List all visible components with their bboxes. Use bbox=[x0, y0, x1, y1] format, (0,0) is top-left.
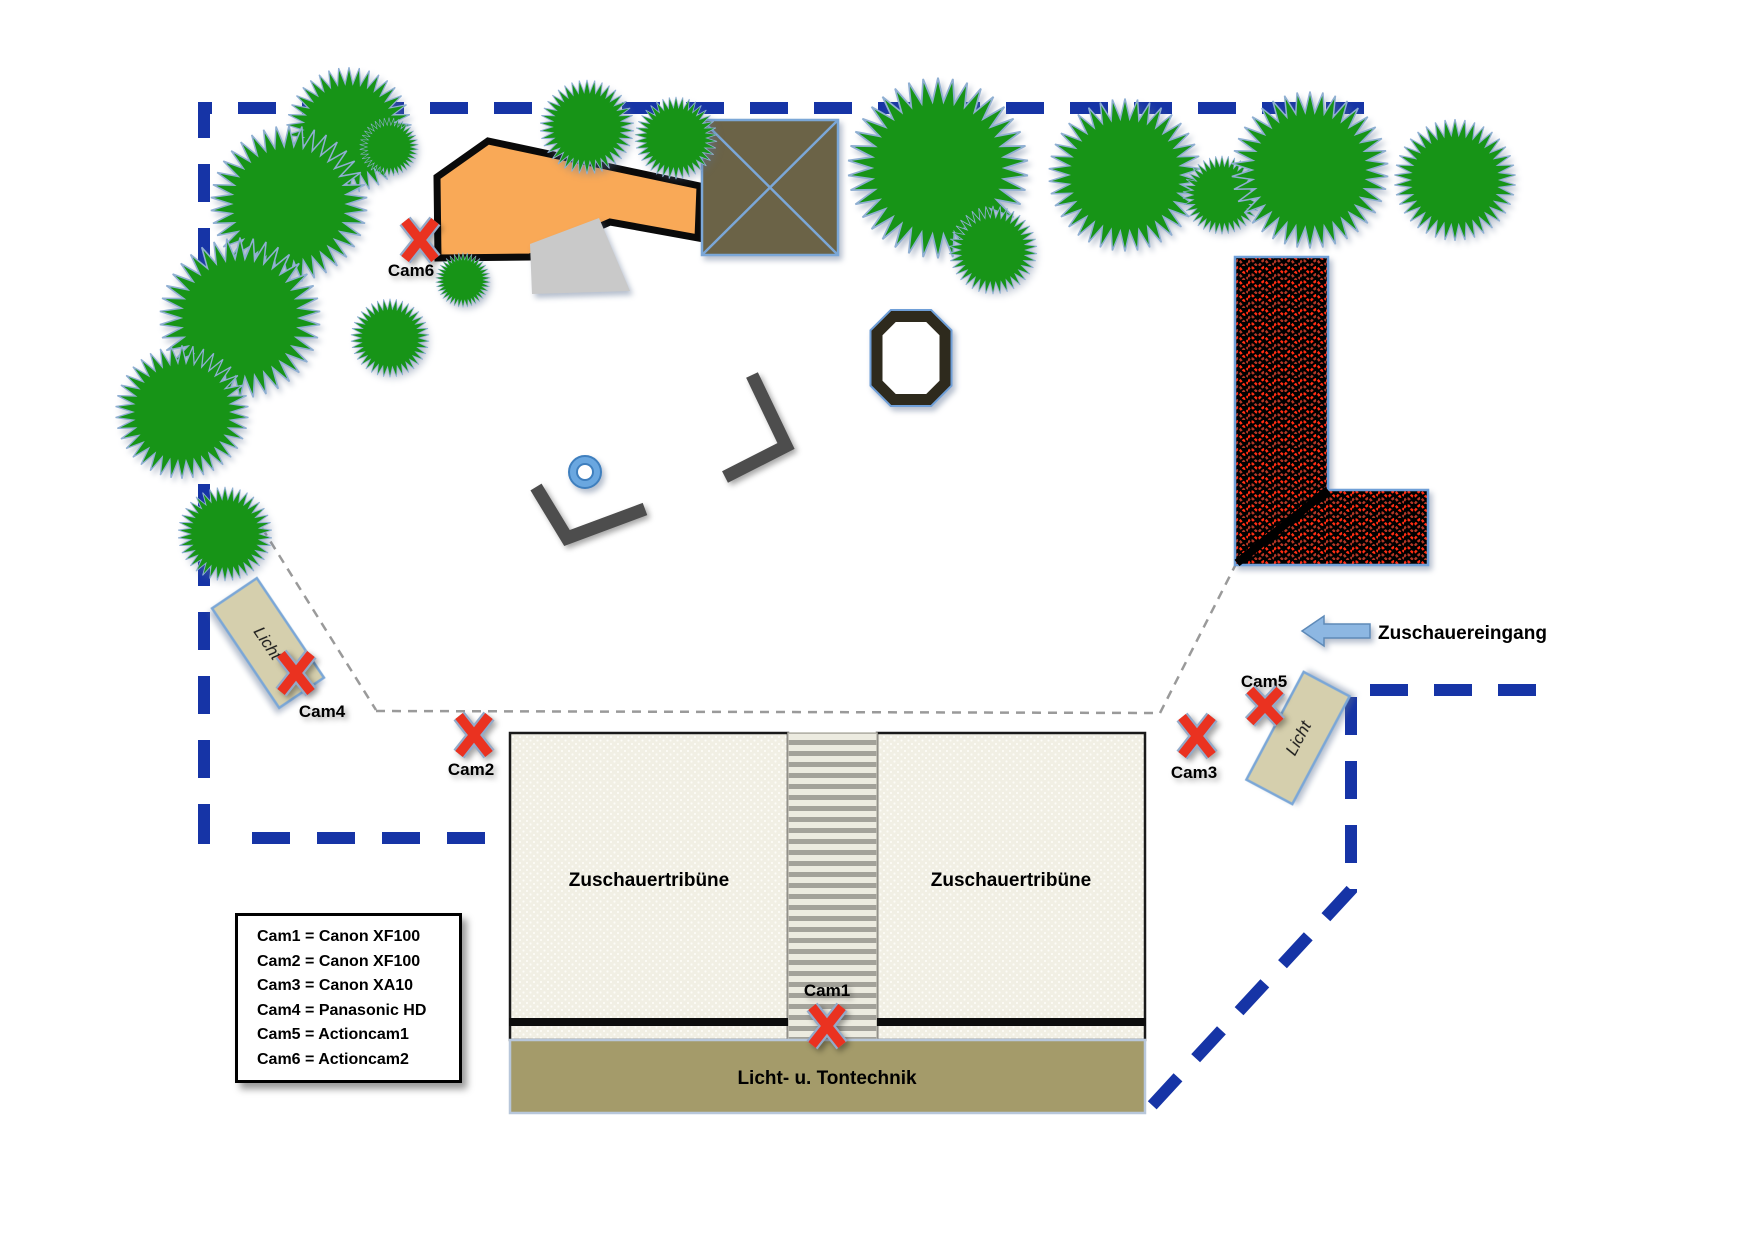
light-stand-right: Licht bbox=[1246, 672, 1349, 804]
tree-icon bbox=[178, 487, 272, 581]
camera-label-cam4: Cam4 bbox=[299, 702, 346, 721]
camera-marker-cam6: Cam6 bbox=[388, 221, 435, 280]
camera-label-cam1: Cam1 bbox=[804, 981, 850, 1000]
camera-label-cam2: Cam2 bbox=[448, 760, 494, 779]
legend-item-cam4: Cam4 = Panasonic HD bbox=[257, 999, 459, 1024]
camera-label-cam5: Cam5 bbox=[1241, 672, 1287, 691]
legend-item-cam3: Cam3 = Canon XA10 bbox=[257, 974, 459, 999]
sightline-horizontal bbox=[376, 711, 1160, 713]
legend-item-cam5: Cam5 = Actioncam1 bbox=[257, 1023, 459, 1048]
sightline-right-diagonal bbox=[1160, 562, 1237, 713]
camera-marker-cam5: Cam5 bbox=[1241, 672, 1287, 722]
legend-item-cam1: Cam1 = Canon XF100 bbox=[257, 925, 459, 950]
tree-icon bbox=[1049, 98, 1201, 251]
sightline-dashed-gray bbox=[262, 528, 1237, 713]
octagon-structure bbox=[877, 317, 945, 400]
camera-label-cam6: Cam6 bbox=[388, 261, 434, 280]
camera-marker-cam2: Cam2 bbox=[448, 716, 494, 779]
hatched-building bbox=[1235, 257, 1428, 565]
angle-barrier-right bbox=[725, 375, 786, 477]
tree-icon bbox=[1232, 92, 1388, 249]
camera-label-cam3: Cam3 bbox=[1171, 763, 1217, 782]
camera-marker-cam3: Cam3 bbox=[1171, 717, 1217, 782]
angle-barriers bbox=[536, 375, 786, 538]
tribune-block bbox=[509, 733, 1146, 1113]
tree-icon bbox=[1394, 119, 1515, 241]
entrance-label: Zuschauereingang bbox=[1378, 623, 1547, 644]
camera-legend: Cam1 = Canon XF100 Cam2 = Canon XF100 Ca… bbox=[235, 913, 462, 1083]
legend-item-cam6: Cam6 = Actioncam2 bbox=[257, 1048, 459, 1073]
tech-bar-label: Licht- u. Tontechnik bbox=[737, 1068, 917, 1089]
legend-item-cam2: Cam2 = Canon XF100 bbox=[257, 950, 459, 975]
entrance-arrow-icon bbox=[1302, 616, 1370, 646]
pavilion-tent bbox=[702, 120, 838, 255]
tribune-right-label: Zuschauertribüne bbox=[931, 870, 1091, 891]
tribune-left-label: Zuschauertribüne bbox=[569, 870, 729, 891]
tree-icon bbox=[351, 299, 429, 377]
ring-marker bbox=[573, 460, 597, 484]
angle-barrier-left bbox=[536, 487, 645, 538]
boundary-corner-stub bbox=[198, 832, 210, 844]
